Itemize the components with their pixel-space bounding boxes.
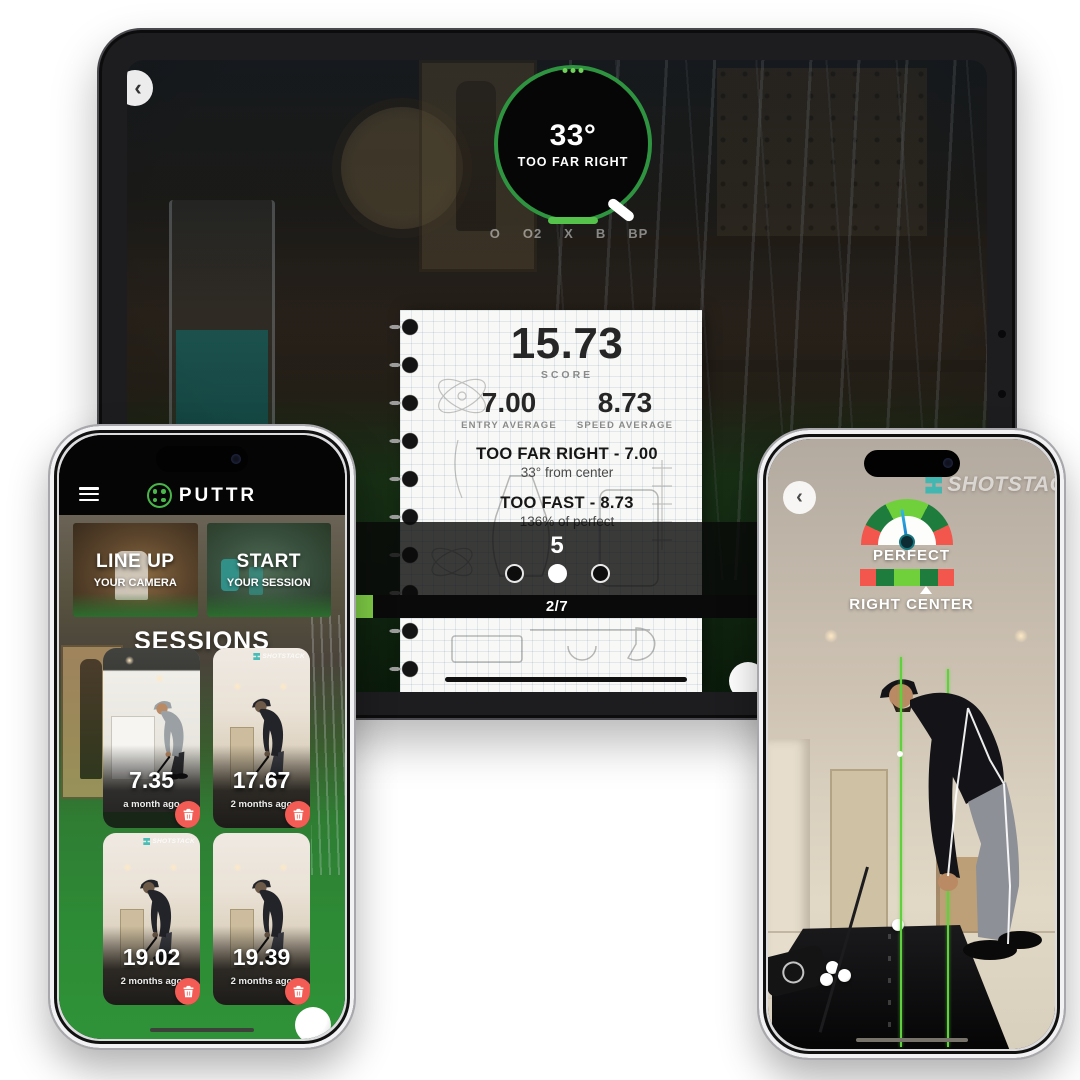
session-score: 19.39 xyxy=(213,944,310,971)
page-dot[interactable] xyxy=(505,564,524,583)
bar-segment-red xyxy=(938,569,954,586)
puttr-ball-icon xyxy=(147,483,172,508)
direction-label: RIGHT CENTER xyxy=(768,596,1055,613)
speed-average-label: SPEED AVERAGE xyxy=(573,420,677,431)
ipad-side-camera xyxy=(998,330,1006,338)
action-tiles: LINE UP YOUR CAMERA START YOUR SESSION xyxy=(73,523,331,617)
session-card[interactable]: 7.35 a month ago xyxy=(103,648,200,828)
delete-session-button[interactable] xyxy=(285,978,310,1005)
action-title: LINE UP xyxy=(96,551,174,573)
right-phone-screen: ‹ SHOTSTACK PERFECT RIGHT CENTER xyxy=(768,439,1055,1049)
entry-detail-sub: 33° from center xyxy=(436,465,698,480)
direction-bar xyxy=(860,569,954,586)
brand-logo: PUTTR xyxy=(59,483,345,508)
dial-value: 33° xyxy=(550,119,597,153)
session-score: 7.35 xyxy=(103,767,200,794)
legend-item: B xyxy=(596,226,606,241)
delete-session-button[interactable] xyxy=(285,801,310,828)
trash-icon xyxy=(292,985,305,998)
pose-skeleton-overlay xyxy=(868,674,1055,994)
bar-segment-light-green xyxy=(894,569,920,586)
score-notebook: 15.73 SCORE 7.00 ENTRY AVERAGE 8.73 SPEE… xyxy=(400,310,702,692)
alignment-line-left xyxy=(900,657,902,1047)
session-score: 17.67 xyxy=(213,767,310,794)
action-subtitle: YOUR CAMERA xyxy=(94,577,177,589)
back-chevron-icon: ‹ xyxy=(134,75,141,101)
start-session-button[interactable]: START YOUR SESSION xyxy=(207,523,332,617)
page-dot-active[interactable] xyxy=(548,564,567,583)
golf-ball xyxy=(838,969,851,982)
speed-average-value: 8.73 xyxy=(573,389,677,417)
pagination-dots[interactable] xyxy=(505,564,610,583)
right-phone-device: ‹ SHOTSTACK PERFECT RIGHT CENTER xyxy=(757,428,1066,1060)
notebook-rule-line xyxy=(445,677,687,682)
delete-session-button[interactable] xyxy=(175,801,200,828)
golf-ball xyxy=(820,973,833,986)
trash-icon xyxy=(292,808,305,821)
session-score: 15.73 xyxy=(436,322,698,366)
shotstack-logo-icon xyxy=(925,477,942,494)
dial-label: TOO FAR RIGHT xyxy=(518,155,629,169)
back-button[interactable]: ‹ xyxy=(783,481,816,514)
session-card[interactable]: SHOTSTACK 17.67 2 months ago xyxy=(213,648,310,828)
shot-legend: O O2 X B BP xyxy=(139,226,987,241)
session-card[interactable]: 19.39 2 months ago xyxy=(213,833,310,1005)
dial-menu-dots-icon xyxy=(563,68,584,73)
legend-item: O xyxy=(490,226,501,241)
golf-ball xyxy=(295,1007,331,1039)
shotstack-watermark: SHOTSTACK xyxy=(253,653,305,660)
entry-average-label: ENTRY AVERAGE xyxy=(457,420,561,431)
progress-label: 2/7 xyxy=(546,598,568,615)
notebook-content: 15.73 SCORE 7.00 ENTRY AVERAGE 8.73 SPEE… xyxy=(436,322,698,529)
entry-detail-title: TOO FAR RIGHT - 7.00 xyxy=(436,445,698,464)
session-card[interactable]: SHOTSTACK 19.02 2 months ago xyxy=(103,833,200,1005)
puttr-pouch-logo xyxy=(780,959,807,986)
legend-item: O2 xyxy=(523,226,542,241)
watermark-text: SHOTSTACK xyxy=(262,653,305,660)
camera-lens xyxy=(943,458,953,468)
trash-icon xyxy=(182,808,195,821)
bar-segment-dark-green xyxy=(920,569,938,586)
delete-session-button[interactable] xyxy=(175,978,200,1005)
ball-trail-dot xyxy=(897,751,903,757)
entry-average-value: 7.00 xyxy=(457,389,561,417)
home-indicator[interactable] xyxy=(856,1038,968,1042)
shotstack-watermark: SHOTSTACK xyxy=(143,838,195,845)
session-score-label: SCORE xyxy=(436,369,698,381)
page-dot[interactable] xyxy=(591,564,610,583)
brand-name: PUTTR xyxy=(179,485,257,507)
dial-target-arc xyxy=(548,217,598,224)
line-up-camera-button[interactable]: LINE UP YOUR CAMERA xyxy=(73,523,198,617)
left-phone-device: PUTTR LINE UP YOUR CAMERA START YOUR SES… xyxy=(48,424,356,1050)
bar-segment-dark-green xyxy=(876,569,894,586)
marketing-composite: ‹ 33° TOO FAR RIGHT O O2 X B BP xyxy=(0,0,1080,1080)
session-score: 19.02 xyxy=(103,944,200,971)
spiral-binding xyxy=(388,314,422,688)
shot-number: 5 xyxy=(550,534,563,558)
direction-pointer-icon xyxy=(920,586,932,594)
action-title: START xyxy=(237,551,301,573)
speed-detail-title: TOO FAST - 8.73 xyxy=(436,494,698,513)
putt-angle-dial: 33° TOO FAR RIGHT xyxy=(494,65,652,223)
trash-icon xyxy=(182,985,195,998)
shotstack-logo-icon xyxy=(143,838,150,845)
dynamic-island xyxy=(156,446,248,472)
home-indicator[interactable] xyxy=(150,1028,254,1032)
back-chevron-icon: ‹ xyxy=(796,486,803,509)
shotstack-logo-icon xyxy=(253,653,260,660)
shotstack-watermark: SHOTSTACK xyxy=(925,473,1055,497)
left-phone-screen: PUTTR LINE UP YOUR CAMERA START YOUR SES… xyxy=(59,435,345,1039)
gauge-result-label: PERFECT xyxy=(768,547,1055,564)
watermark-text: SHOTSTACK xyxy=(152,838,195,845)
legend-item: BP xyxy=(628,226,648,241)
bar-segment-red xyxy=(860,569,876,586)
watermark-text: SHOTSTACK xyxy=(947,473,1055,497)
action-subtitle: YOUR SESSION xyxy=(227,577,311,589)
legend-item: X xyxy=(564,226,574,241)
camera-lens xyxy=(231,454,241,464)
